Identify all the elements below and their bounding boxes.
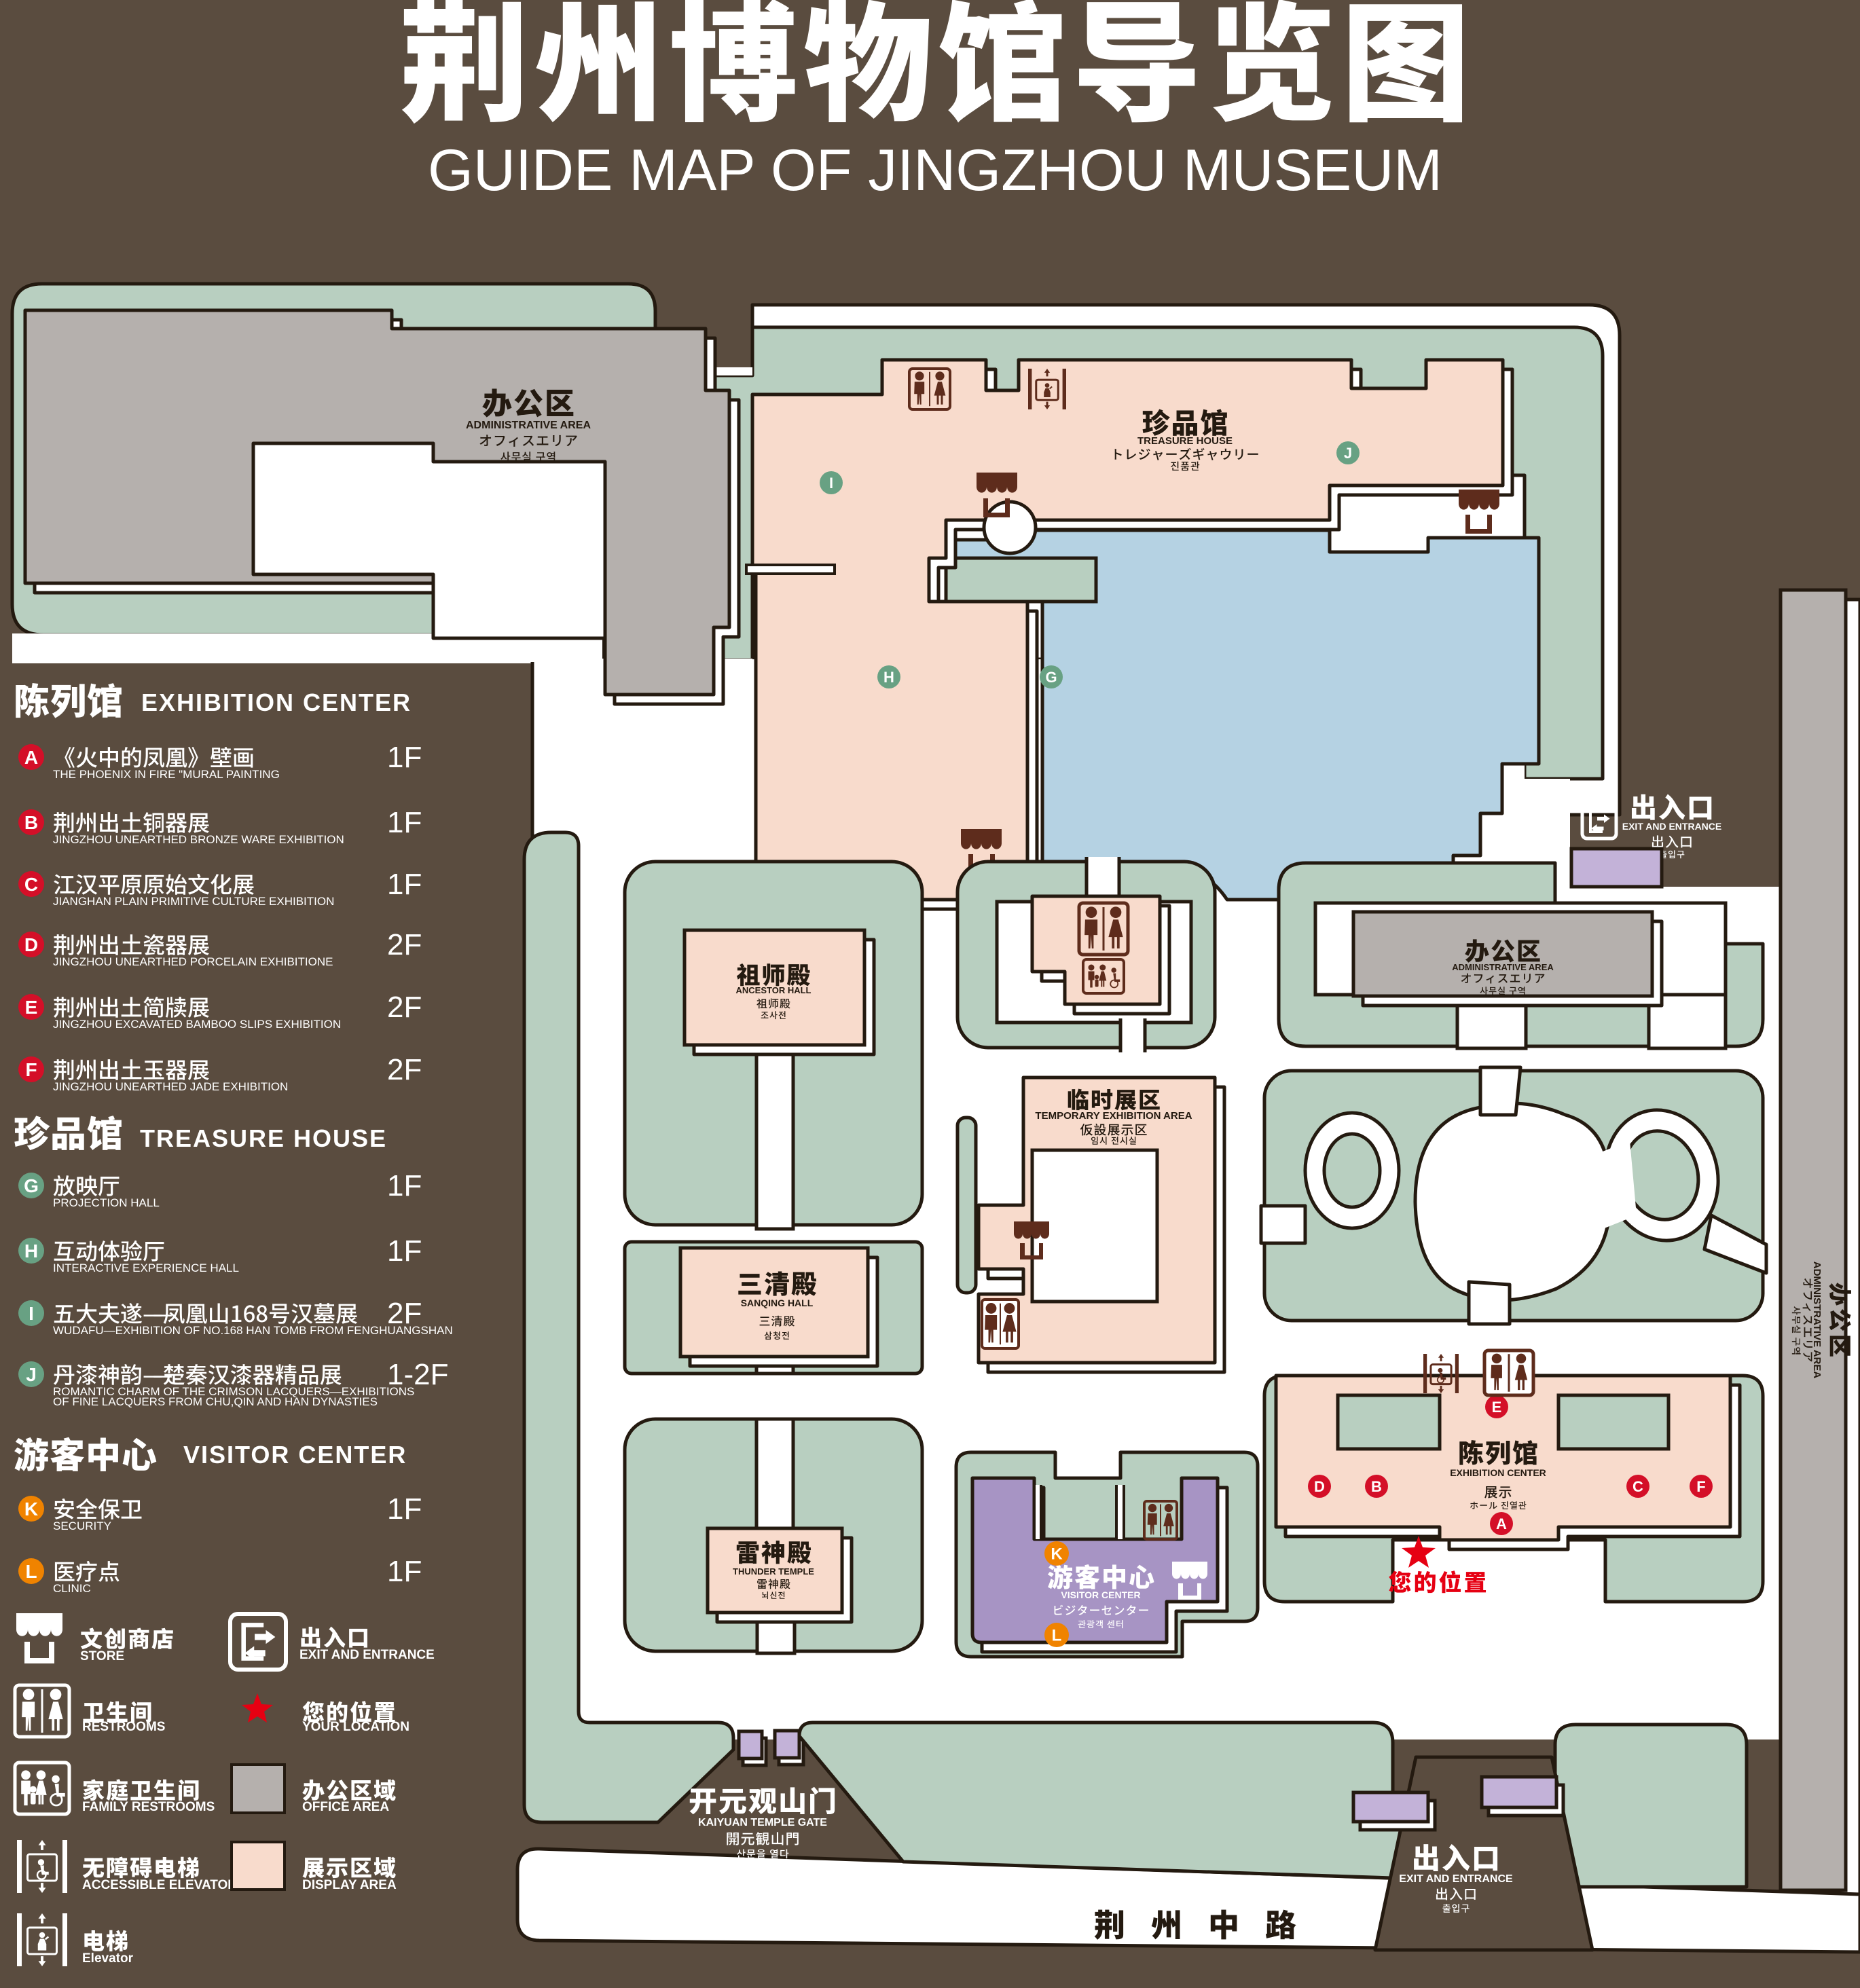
- svg-text:I: I: [829, 475, 833, 492]
- svg-text:ACCESSIBLE ELEVATOR: ACCESSIBLE ELEVATOR: [82, 1878, 237, 1892]
- svg-text:EXHIBITION CENTER: EXHIBITION CENTER: [1450, 1467, 1546, 1478]
- svg-text:K: K: [24, 1498, 38, 1520]
- svg-text:KAIYUAN TEMPLE GATE: KAIYUAN TEMPLE GATE: [698, 1817, 827, 1828]
- svg-text:1-2F: 1-2F: [387, 1358, 448, 1391]
- svg-text:E: E: [1492, 1399, 1502, 1416]
- svg-text:J: J: [26, 1364, 37, 1385]
- svg-text:G: G: [24, 1175, 39, 1196]
- svg-text:EXIT AND ENTRANCE: EXIT AND ENTRANCE: [1622, 821, 1722, 832]
- svg-text:L: L: [25, 1561, 37, 1582]
- svg-text:1F: 1F: [387, 1555, 422, 1588]
- svg-text:2F: 2F: [387, 1053, 422, 1086]
- svg-text:THUNDER TEMPLE: THUNDER TEMPLE: [733, 1566, 814, 1577]
- svg-text:K: K: [1051, 1545, 1063, 1564]
- svg-text:EXIT AND ENTRANCE: EXIT AND ENTRANCE: [1399, 1873, 1513, 1885]
- svg-text:G: G: [1045, 669, 1057, 686]
- svg-text:GUIDE MAP OF JINGZHOU MUSEUM: GUIDE MAP OF JINGZHOU MUSEUM: [428, 138, 1442, 203]
- svg-text:ADMINISTRATIVE AREA: ADMINISTRATIVE AREA: [1452, 962, 1554, 972]
- svg-text:OF FINE LACQUERS FROM CHU,QIN: OF FINE LACQUERS FROM CHU,QIN AND HAN DY…: [53, 1395, 378, 1408]
- svg-text:THE PHOENIX IN FIRE "MURAL PAI: THE PHOENIX IN FIRE "MURAL PAINTING: [53, 768, 280, 781]
- svg-text:EXHIBITION CENTER: EXHIBITION CENTER: [141, 688, 412, 716]
- svg-text:F: F: [25, 1059, 37, 1080]
- svg-text:STORE: STORE: [80, 1649, 124, 1663]
- svg-text:H: H: [24, 1240, 38, 1262]
- svg-text:JINGZHOU EXCAVATED BAMBOO SLIP: JINGZHOU EXCAVATED BAMBOO SLIPS EXHIBITI…: [53, 1018, 341, 1031]
- svg-text:2F: 2F: [387, 991, 422, 1024]
- svg-text:2F: 2F: [387, 1297, 422, 1330]
- svg-text:C: C: [24, 874, 38, 895]
- svg-text:2F: 2F: [387, 928, 422, 961]
- svg-text:RESTROOMS: RESTROOMS: [82, 1720, 165, 1734]
- svg-text:H: H: [883, 669, 894, 686]
- svg-text:TREASURE HOUSE: TREASURE HOUSE: [1137, 435, 1233, 447]
- svg-text:B: B: [1371, 1478, 1382, 1495]
- svg-text:Elevator: Elevator: [82, 1951, 134, 1966]
- svg-text:1F: 1F: [387, 1169, 422, 1202]
- svg-text:CLINIC: CLINIC: [53, 1582, 91, 1595]
- svg-text:FAMILY RESTROOMS: FAMILY RESTROOMS: [82, 1800, 215, 1814]
- svg-text:OFFICE AREA: OFFICE AREA: [302, 1800, 389, 1814]
- svg-text:C: C: [1633, 1478, 1643, 1495]
- svg-text:A: A: [1496, 1515, 1507, 1532]
- svg-text:1F: 1F: [387, 1234, 422, 1268]
- svg-text:F: F: [1696, 1478, 1705, 1495]
- svg-text:YOUR LOCATION: YOUR LOCATION: [302, 1720, 409, 1734]
- svg-text:1F: 1F: [387, 1492, 422, 1526]
- svg-text:ADMINISTRATIVE AREA: ADMINISTRATIVE AREA: [466, 420, 591, 431]
- svg-text:JIANGHAN PLAIN PRIMITIVE CULTU: JIANGHAN PLAIN PRIMITIVE CULTURE EXHIBIT…: [53, 895, 334, 908]
- svg-text:JINGZHOU UNEARTHED PORCELAIN E: JINGZHOU UNEARTHED PORCELAIN EXHIBITIONE: [53, 955, 333, 968]
- svg-text:PROJECTION HALL: PROJECTION HALL: [53, 1196, 160, 1209]
- svg-text:L: L: [1052, 1627, 1062, 1645]
- svg-text:TEMPORARY EXHIBITION AREA: TEMPORARY EXHIBITION AREA: [1035, 1110, 1192, 1122]
- svg-text:1F: 1F: [387, 868, 422, 901]
- svg-text:A: A: [24, 747, 38, 768]
- svg-text:B: B: [24, 812, 38, 833]
- svg-text:J: J: [1344, 445, 1352, 462]
- svg-text:SECURITY: SECURITY: [53, 1520, 111, 1532]
- svg-text:VISITOR CENTER: VISITOR CENTER: [183, 1441, 407, 1469]
- svg-text:ADMINISTRATIVE AREA: ADMINISTRATIVE AREA: [1811, 1262, 1823, 1379]
- svg-text:D: D: [1314, 1478, 1325, 1495]
- svg-text:ANCESTOR HALL: ANCESTOR HALL: [736, 985, 812, 995]
- svg-text:1F: 1F: [387, 806, 422, 839]
- svg-text:SANQING HALL: SANQING HALL: [741, 1297, 814, 1308]
- svg-text:VISITOR CENTER: VISITOR CENTER: [1061, 1589, 1140, 1600]
- svg-text:EXIT AND ENTRANCE: EXIT AND ENTRANCE: [299, 1648, 435, 1662]
- svg-text:E: E: [25, 997, 38, 1018]
- svg-text:1F: 1F: [387, 741, 422, 774]
- svg-text:TREASURE HOUSE: TREASURE HOUSE: [140, 1124, 387, 1152]
- svg-text:I: I: [29, 1303, 34, 1324]
- svg-text:D: D: [24, 934, 38, 955]
- svg-text:JINGZHOU UNEARTHED BRONZE WARE: JINGZHOU UNEARTHED BRONZE WARE EXHIBITIO…: [53, 833, 344, 846]
- svg-text:INTERACTIVE EXPERIENCE HALL: INTERACTIVE EXPERIENCE HALL: [53, 1262, 239, 1274]
- svg-text:DISPLAY AREA: DISPLAY AREA: [302, 1878, 397, 1892]
- svg-text:JINGZHOU UNEARTHED JADE EXHIBI: JINGZHOU UNEARTHED JADE EXHIBITION: [53, 1080, 288, 1093]
